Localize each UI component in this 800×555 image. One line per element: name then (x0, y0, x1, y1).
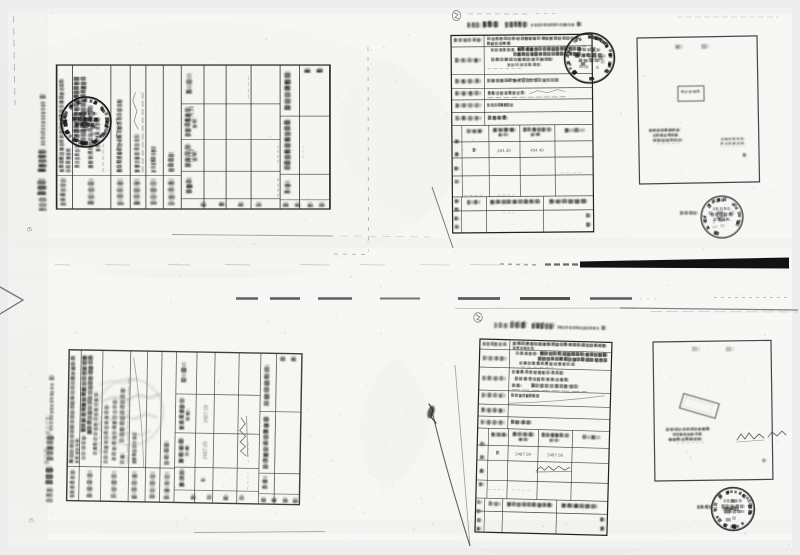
svg-text:773.88: 773.88 (189, 149, 196, 163)
svg-text:2487.09: 2487.09 (547, 452, 564, 457)
svg-text:(5: (5 (27, 227, 32, 233)
svg-text:2487.09: 2487.09 (203, 405, 209, 423)
svg-text:404 40: 404 40 (530, 148, 544, 153)
svg-text:2487.09: 2487.09 (203, 441, 209, 459)
svg-text:778.88: 778.88 (189, 106, 196, 120)
svg-text:2487.09: 2487.09 (515, 451, 532, 456)
svg-text:404.40: 404.40 (497, 148, 511, 153)
svg-text:(5: (5 (29, 518, 34, 524)
